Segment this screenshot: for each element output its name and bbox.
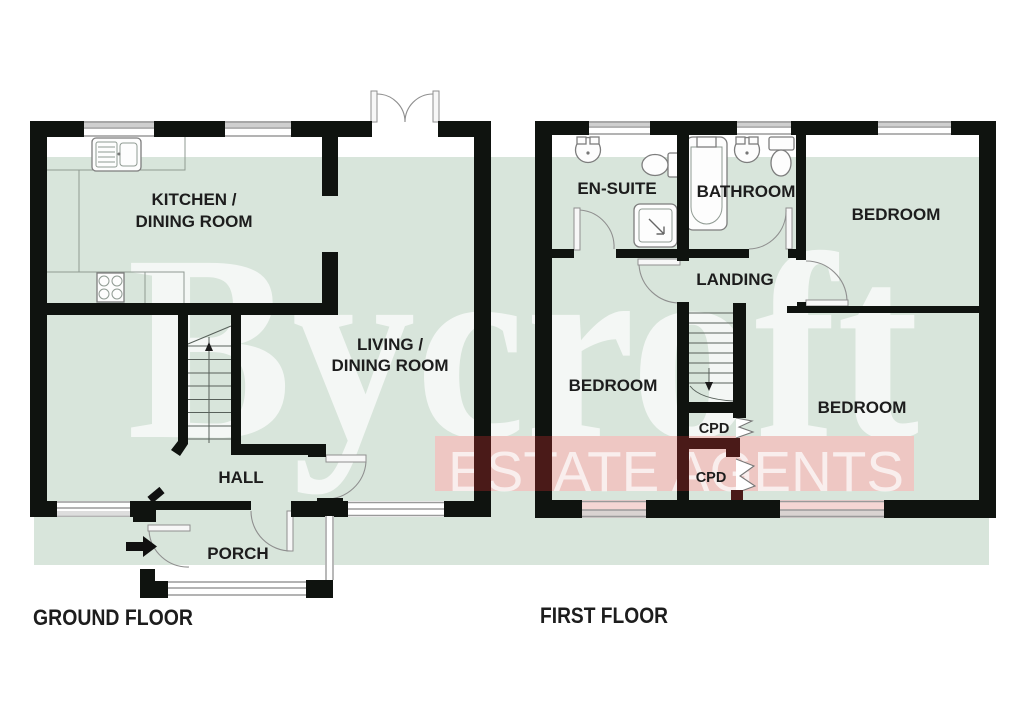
svg-text:PORCH: PORCH bbox=[207, 544, 268, 563]
svg-text:DINING ROOM: DINING ROOM bbox=[331, 356, 448, 375]
svg-text:KITCHEN /: KITCHEN / bbox=[152, 190, 237, 209]
svg-text:BEDROOM: BEDROOM bbox=[569, 376, 658, 395]
svg-text:GROUND FLOOR: GROUND FLOOR bbox=[33, 605, 193, 630]
svg-text:DINING ROOM: DINING ROOM bbox=[135, 212, 252, 231]
svg-text:FIRST FLOOR: FIRST FLOOR bbox=[540, 603, 668, 628]
svg-text:LANDING: LANDING bbox=[696, 270, 773, 289]
svg-text:BEDROOM: BEDROOM bbox=[818, 398, 907, 417]
svg-text:ESTATE AGENTS: ESTATE AGENTS bbox=[448, 440, 904, 504]
svg-text:BEDROOM: BEDROOM bbox=[852, 205, 941, 224]
svg-text:EN-SUITE: EN-SUITE bbox=[577, 179, 656, 198]
svg-text:CPD: CPD bbox=[699, 421, 730, 437]
svg-text:HALL: HALL bbox=[218, 468, 263, 487]
svg-text:CPD: CPD bbox=[696, 470, 727, 486]
svg-text:BATHROOM: BATHROOM bbox=[697, 182, 796, 201]
svg-text:LIVING /: LIVING / bbox=[357, 335, 423, 354]
